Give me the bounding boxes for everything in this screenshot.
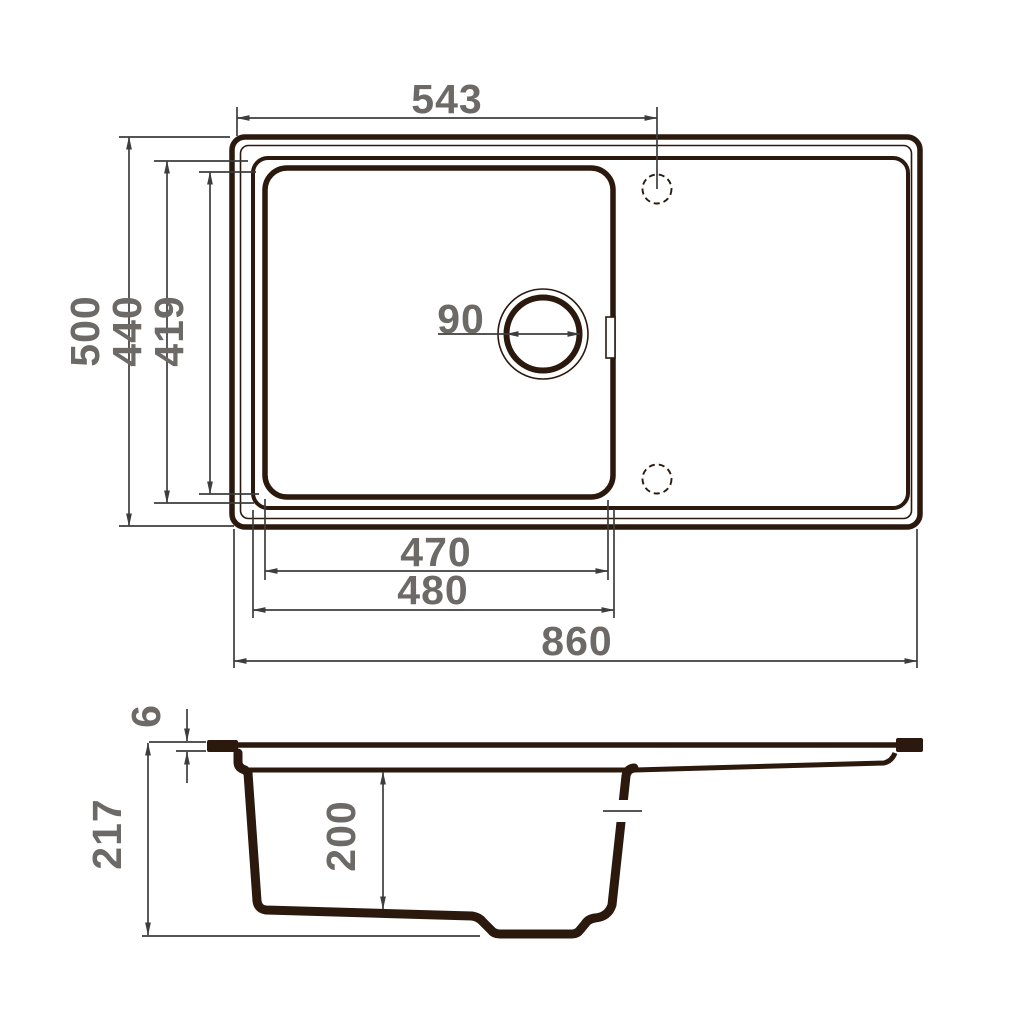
side-view: 6 217 200: [84, 704, 923, 936]
right-rim-lip: [896, 738, 923, 752]
dim-label-90: 90: [437, 296, 485, 342]
inner-surface-line: [244, 753, 895, 770]
tap-hole-bottom: [643, 465, 672, 494]
dim-label-6: 6: [123, 704, 169, 728]
dim-label-419: 419: [146, 295, 192, 366]
dim-label-543: 543: [411, 76, 482, 122]
left-rim-lip: [207, 740, 238, 752]
dim-label-500: 500: [62, 295, 108, 366]
dim-label-860: 860: [541, 618, 612, 664]
dim-label-440: 440: [104, 295, 150, 366]
dim-label-200: 200: [318, 800, 364, 871]
sink-dimension-diagram: 543 500 440 419 90: [0, 0, 1024, 1024]
overflow-slot: [606, 317, 615, 358]
technical-drawing-page: 543 500 440 419 90: [0, 0, 1024, 1024]
dim-label-480: 480: [397, 567, 468, 613]
sink-outer-inner-line: [241, 146, 912, 519]
dimension-6: 6: [123, 704, 206, 783]
dimension-860: 860: [234, 529, 917, 668]
sink-outer-edge: [232, 137, 920, 527]
dimension-200: 200: [318, 772, 383, 909]
top-view: 543 500 440 419 90: [62, 76, 920, 668]
bowl-section-outline: [238, 753, 634, 934]
dimension-543: 543: [237, 76, 657, 189]
dim-label-217: 217: [84, 798, 130, 869]
dimension-419: 419: [146, 172, 259, 494]
